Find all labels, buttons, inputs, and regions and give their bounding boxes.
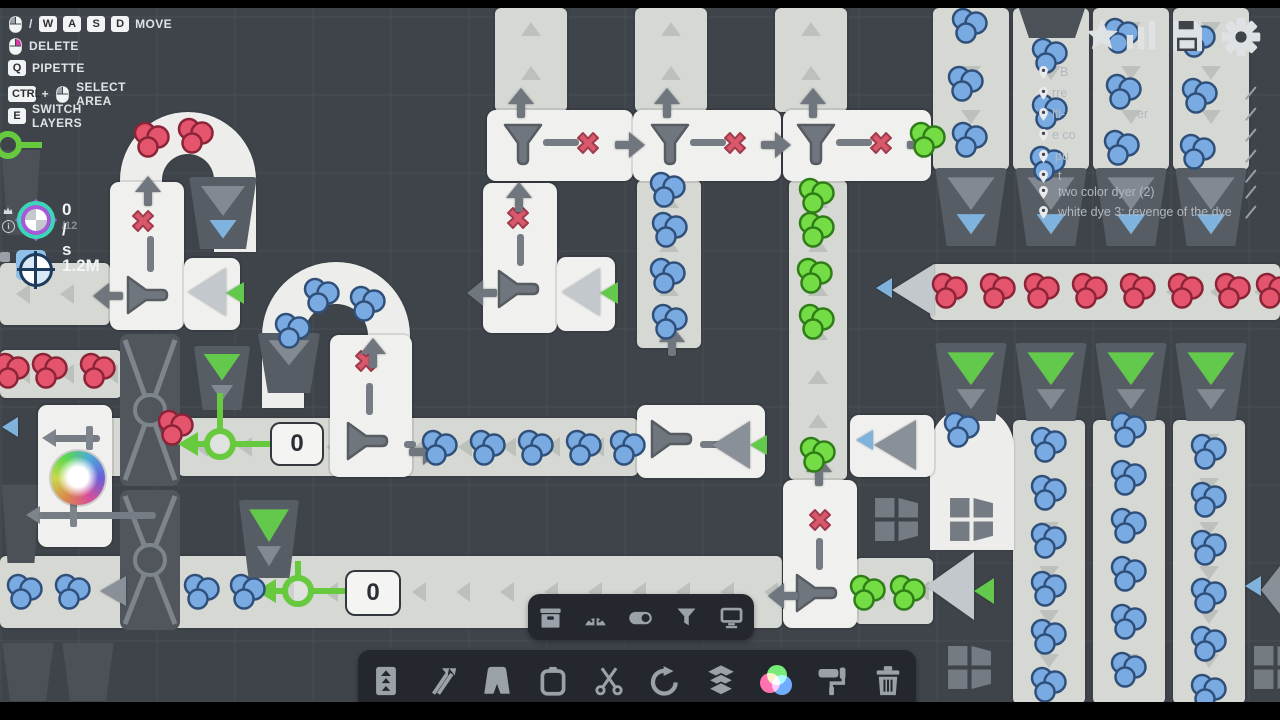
legend-label: MOVE [135,17,172,31]
edit-pencil-icon[interactable] [1243,168,1259,184]
belt-chevron-icon [192,582,206,602]
marker-row: e co [0,127,1280,145]
booster-triangle-blue-icon[interactable] [2,417,18,437]
mouse-right-icon [8,37,23,56]
belt-chevron-icon [1199,566,1219,580]
legend-row: CTRL+SELECT AREA [8,84,136,104]
tunnel-button[interactable] [480,664,514,698]
belt-chevron-icon [1039,434,1059,448]
conveyor-belt-down[interactable] [1013,420,1085,704]
belt-chevron-icon [60,582,74,602]
booster-triangle-green-icon[interactable] [600,282,618,304]
belt-chevron-icon [521,22,541,36]
key-e: E [8,108,26,124]
belt-chevron-icon [808,326,828,340]
belt-chevron-icon [1199,610,1219,624]
belt-chevron-icon [871,581,885,601]
booster-triangle-blue-icon[interactable] [876,278,892,298]
belt-chevron-icon [1199,434,1219,448]
booster-triangle-light-icon[interactable] [926,552,974,620]
belt-chevron-icon [590,437,604,457]
belt-chevron-icon [661,22,681,36]
belt-chevron-icon [1119,654,1139,668]
hopper[interactable] [1013,343,1089,421]
item-counter[interactable] [204,428,236,460]
belt-chevron-icon [1039,478,1059,492]
color-mixer-ball[interactable] [51,451,105,505]
marker-row: pu [0,148,1280,166]
belt-chevron-icon [1199,522,1219,536]
conveyor-belt-left[interactable] [855,558,933,624]
belt-chevron-icon [1254,282,1268,302]
filter-button[interactable] [673,604,700,631]
map-pin-icon [1036,65,1049,81]
item-counter[interactable] [282,575,314,607]
belt-chevron-icon [16,582,30,602]
belt-chevron-icon [412,582,426,602]
sprite [806,456,832,472]
map-pin-icon [1036,205,1049,221]
booster-triangle-green-icon[interactable] [974,578,994,604]
belt-chevron-icon [1199,478,1219,492]
hopper-triangle-blue-icon [209,220,236,239]
edit-pencil-icon[interactable] [1243,148,1259,164]
belt-chevron-icon [16,364,30,384]
hopper-triangle-green-icon [1027,352,1074,385]
booster-triangle-gray-icon[interactable] [874,420,916,470]
hopper-triangle-green-icon [947,352,994,385]
edit-pencil-icon[interactable] [1243,204,1259,220]
save-icon[interactable] [1167,16,1207,56]
shuffle-button[interactable] [425,664,459,698]
layers-button[interactable] [704,664,738,698]
gauge-button[interactable] [582,604,609,631]
belt-chevron-icon [808,414,828,428]
legend-row: QPIPETTE [8,58,85,78]
structure-block[interactable] [0,643,56,701]
money-mini-icon [0,252,10,262]
belt-chevron-icon [1119,610,1139,624]
booster-triangle-blue-icon[interactable] [856,430,873,450]
counter-display[interactable]: 0 [347,572,399,614]
marker-label: er [1137,107,1148,121]
counter-arrow-icon [178,432,198,456]
belt-chevron-icon [1119,478,1139,492]
hopper-triangle-gray-icon [957,389,986,409]
conveyor-belt-up[interactable] [789,180,847,480]
money-target-icon [14,248,58,292]
machine-link-bar [816,538,823,570]
colors-button[interactable] [759,664,793,698]
map-pin-icon [1036,86,1049,102]
belt-chevron-icon [60,364,74,384]
belt-arrow-left-icon[interactable] [467,280,499,306]
belt-chevron-icon [1039,610,1059,624]
belt-chevron-icon [801,22,821,36]
belt-chevron-icon [1166,282,1180,302]
counter-arm [311,588,345,594]
belt-chevron-icon [1119,522,1139,536]
pipe-bar [54,435,100,442]
machine-link-bar [147,236,154,272]
windmill-icon[interactable] [948,496,995,543]
counter-display[interactable]: 0 [272,424,322,464]
storage-button[interactable] [537,604,564,631]
funnel-machine-icon[interactable] [794,571,840,615]
belt-chevron-icon [808,238,828,252]
conveyor-belt-down[interactable] [1093,420,1165,704]
machine-link-bar [517,234,524,266]
scissors-button[interactable] [592,664,626,698]
sprite [783,592,798,600]
letterbox-bottom [0,702,1280,720]
belt-chevron-icon [456,582,470,602]
hopper-triangle-gray-icon [1117,389,1146,409]
belt-chevron-icon [990,282,1004,302]
legend-separator: / [29,17,33,31]
belt-chevron-icon [500,582,514,602]
belt-chevron-icon [659,238,679,252]
structure-block[interactable] [60,643,116,701]
legend-label: DELETE [29,39,79,53]
belt-chevron-icon [659,282,679,296]
toggle-button[interactable] [627,604,654,631]
key-a: A [63,16,81,32]
belt-chevron-icon [502,437,516,457]
booster-triangle-light-icon[interactable] [188,268,226,316]
belt-arrow-left-icon[interactable] [93,283,125,309]
crown-icon [2,204,14,216]
machine-link-bar [366,383,373,415]
star-icon[interactable] [1083,16,1121,54]
marker-label: pu [1055,149,1069,163]
key-ctrl: CTRL [8,86,36,102]
belt-elevator-button[interactable] [369,664,403,698]
sprite [815,471,823,486]
pipe-arm[interactable] [42,426,100,450]
legend-row: /WASDMOVE [8,14,172,34]
belt-chevron-icon [808,282,828,296]
marker-label: two color dyer (2) [1058,185,1155,199]
belt-chevron-icon [1210,282,1224,302]
hopper-triangle-gray-icon [1197,389,1226,409]
funnel-machine-icon[interactable] [649,417,695,461]
map-pin-icon [1036,169,1049,185]
legend-row: DELETE [8,36,79,56]
belt-chevron-icon [60,284,74,304]
key-q: Q [8,60,26,76]
windmill-icon[interactable] [873,496,920,543]
funnel-machine-icon[interactable] [345,419,391,463]
belt-chevron-icon [104,364,118,384]
sprite [423,439,439,465]
legend-label: SELECT AREA [76,80,135,108]
marker-label: t [1058,169,1061,183]
booster-triangle-blue-icon[interactable] [1245,576,1261,596]
hopper[interactable] [1093,343,1169,421]
marker-row: rre [0,85,1280,103]
marker-label: lti- [1052,107,1065,121]
hopper[interactable] [1173,343,1249,421]
funnel-machine-icon[interactable] [496,267,542,311]
display-button[interactable] [718,604,745,631]
hopper-triangle-green-icon [249,509,289,542]
counter-arm [217,393,223,429]
money-amount: 1.2M [62,256,100,276]
rotate-button[interactable] [648,664,682,698]
belt-chevron-icon [1039,654,1059,668]
windmill-icon[interactable] [1252,644,1280,691]
sprite [409,448,424,456]
belt-chevron-icon [1034,282,1048,302]
belt-chevron-icon [1122,282,1136,302]
pipe-bar [38,512,156,519]
booster-triangle-gray-icon[interactable] [712,421,750,469]
marker-row: B [0,64,1280,82]
pipe-tcap [86,426,93,450]
hopper-triangle-green-icon [1107,352,1154,385]
belt-crossing[interactable] [120,334,180,486]
delivery-cap: /12 [62,220,77,232]
belt-chevron-icon [1078,282,1092,302]
game-screen: 00 /WASDMOVEDELETEQPIPETTECTRL+SELECT AR… [0,0,1280,720]
belt-arrow-right-icon[interactable] [407,439,439,465]
booster-triangle-green-icon[interactable] [750,435,767,455]
marker-label: B [1060,65,1068,79]
belt-arrow-left-icon[interactable] [768,583,800,609]
sprite [369,353,377,368]
belt-arrow-up-icon[interactable] [659,326,685,358]
marker-row: white dye 3: revenge of the dye [0,204,1280,222]
belt-chevron-icon [1119,434,1139,448]
clipboard-button[interactable] [536,664,570,698]
goal-target-icon [14,198,58,242]
sprite [360,338,386,354]
belt-arrow-up-icon[interactable] [806,456,832,488]
settings-icon[interactable] [1220,16,1262,58]
letterbox-top [0,0,1280,8]
marker-row: two color dyer (2) [0,184,1280,202]
hopper-triangle-gray-icon [269,340,310,365]
sprite [768,583,784,609]
belt-arrow-up-icon[interactable] [360,338,386,370]
counter-arm [233,441,270,447]
stats-icon[interactable] [1122,16,1160,54]
edit-pencil-icon[interactable] [1243,127,1259,143]
pipe-arm[interactable] [26,503,156,527]
belt-chevron-icon [1199,654,1219,668]
belt-chevron-icon [1039,566,1059,580]
booster-triangle-light-icon[interactable] [892,264,934,316]
trash-button[interactable] [871,664,905,698]
counter-arrow-icon [256,579,276,603]
booster-triangle-gray-icon[interactable] [100,576,126,606]
belt-chevron-icon [946,282,960,302]
sprite [93,283,109,309]
hopper[interactable] [933,343,1009,421]
sprite [668,341,676,356]
sprite [467,280,483,306]
map-pin-icon [1036,185,1049,201]
legend-label: SWITCH LAYERS [32,102,82,130]
hopper-triangle-gray-icon [1037,389,1066,409]
marker-row: lti-er [0,106,1280,124]
blocker-x-icon[interactable] [806,506,834,534]
legend-separator: + [42,87,49,101]
map-pin-icon [1036,149,1049,165]
belt-chevron-icon [1039,522,1059,536]
map-pin-icon [1036,128,1049,144]
conveyor-belt-left[interactable] [930,264,1280,320]
legend-label: PIPETTE [32,61,85,75]
marker-label: e co [1052,128,1076,142]
sprite [108,292,123,300]
belt-chevron-icon [238,437,252,457]
marker-label: rre [1052,86,1067,100]
belt-chevron-icon [546,437,560,457]
edit-pencil-icon[interactable] [1243,85,1259,101]
belt-chevron-icon [808,370,828,384]
key-w: W [39,16,57,32]
paint-roller-button[interactable] [815,664,849,698]
mouse-left-icon [55,85,70,104]
belt-chevron-icon [458,437,472,457]
pipe-tcap [70,503,77,527]
windmill-icon[interactable] [946,644,993,691]
belt-chevron-icon [961,22,981,36]
edit-pencil-icon[interactable] [1243,106,1259,122]
key-s: S [87,16,105,32]
map-pin-icon [1036,107,1049,123]
conveyor-belt-left[interactable] [0,350,122,398]
hopper-triangle-green-icon [203,354,240,381]
booster-triangle-gray-icon[interactable] [1261,566,1280,614]
belt-chevron-icon [1119,566,1139,580]
booster-triangle-green-icon[interactable] [226,282,244,304]
belt-chevron-icon [236,582,250,602]
hopper-triangle-green-icon [1187,352,1234,385]
hopper-triangle-gray-icon [257,546,281,566]
booster-triangle-light-icon[interactable] [562,268,600,316]
key-d: D [111,16,129,32]
conveyor-belt-down[interactable] [1173,420,1245,704]
legend-row: ESWITCH LAYERS [8,106,82,126]
marker-label: white dye 3: revenge of the dye [1058,205,1232,219]
edit-pencil-icon[interactable] [1243,184,1259,200]
filter-toolbar [528,594,754,640]
sprite [482,289,497,297]
funnel-machine-icon[interactable] [125,273,171,317]
counter-arm [295,561,301,576]
sprite [659,326,685,342]
color-blue-icon [772,675,792,695]
mouse-left-icon [8,15,23,34]
